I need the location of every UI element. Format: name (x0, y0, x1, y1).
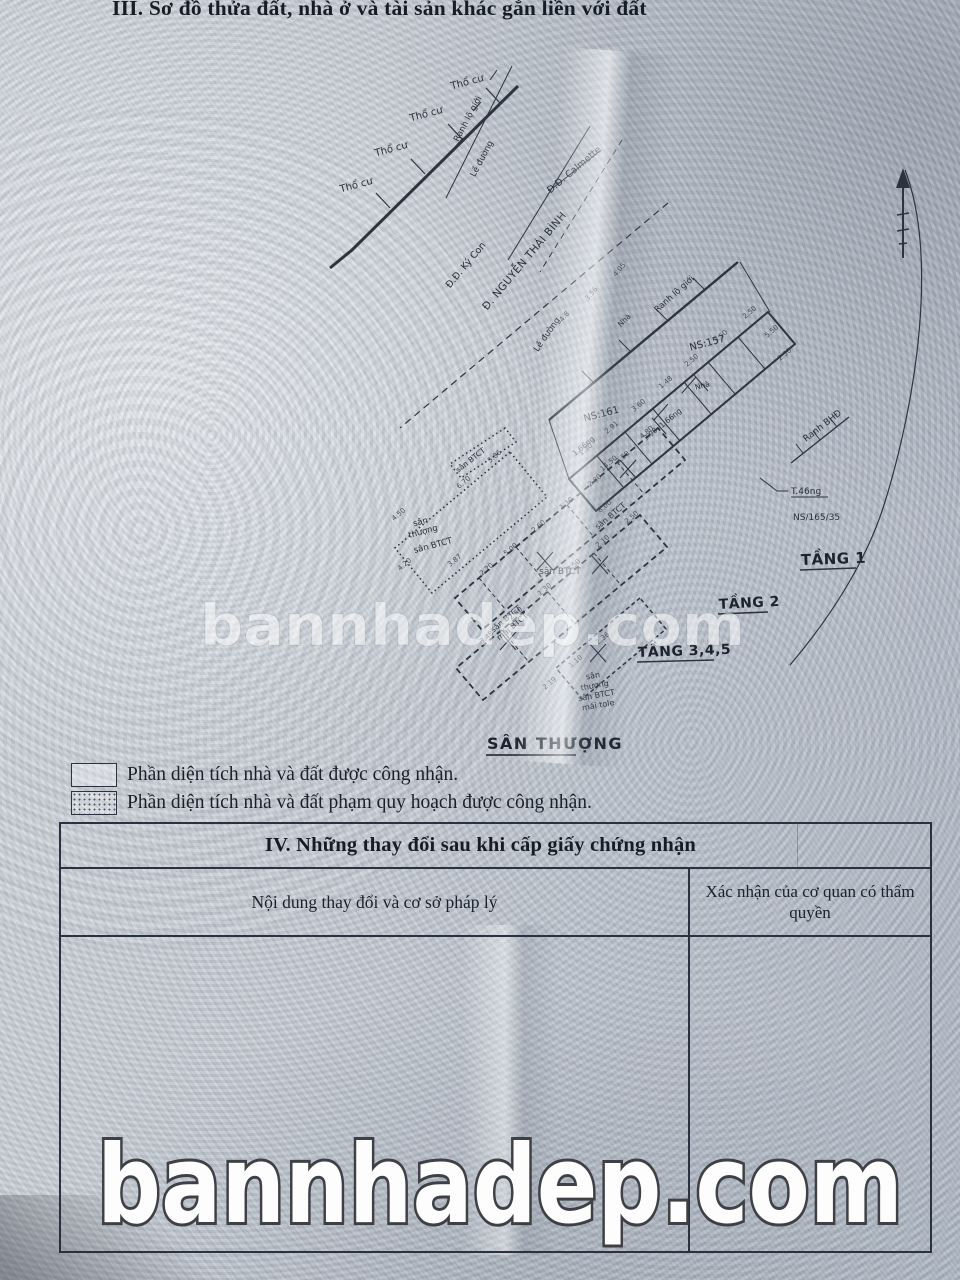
certificate-page: { "page_title": "III. Sơ đồ thửa đất, nh… (0, 0, 960, 1280)
watermark-layer: bannhadep.com bannhadep.com (0, 0, 960, 1280)
watermark-center: bannhadep.com (200, 593, 745, 659)
watermark-bottom: bannhadep.com (97, 1123, 903, 1248)
